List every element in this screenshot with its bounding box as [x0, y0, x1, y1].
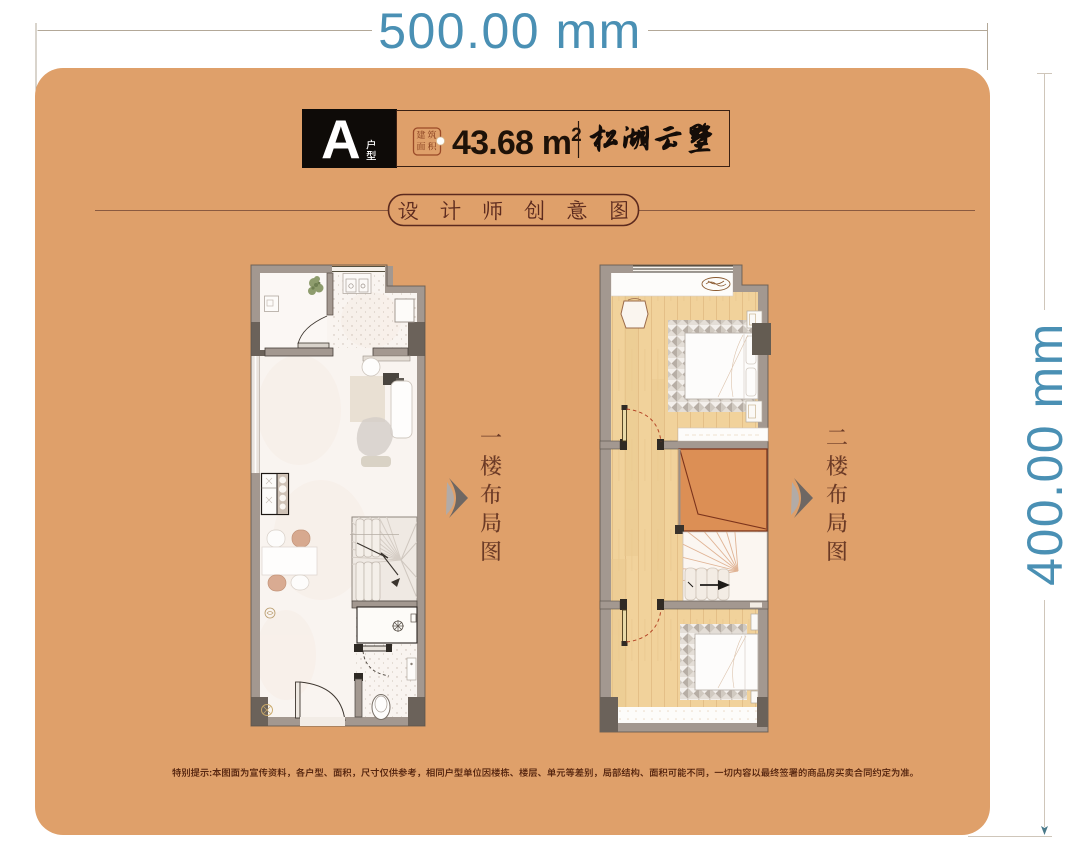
- svg-text:500.00 mm: 500.00 mm: [378, 3, 642, 59]
- svg-text:400.00 mm: 400.00 mm: [1017, 322, 1073, 586]
- svg-text:43.68 m2: 43.68 m2: [452, 124, 581, 162]
- svg-text:A: A: [321, 108, 361, 170]
